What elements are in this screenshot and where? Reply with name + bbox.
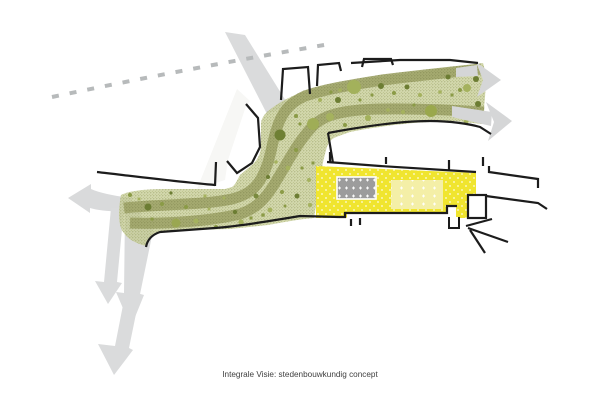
- svg-text:Integrale Visie: stedenbouwkun: Integrale Visie: stedenbouwkundig concep…: [222, 370, 378, 379]
